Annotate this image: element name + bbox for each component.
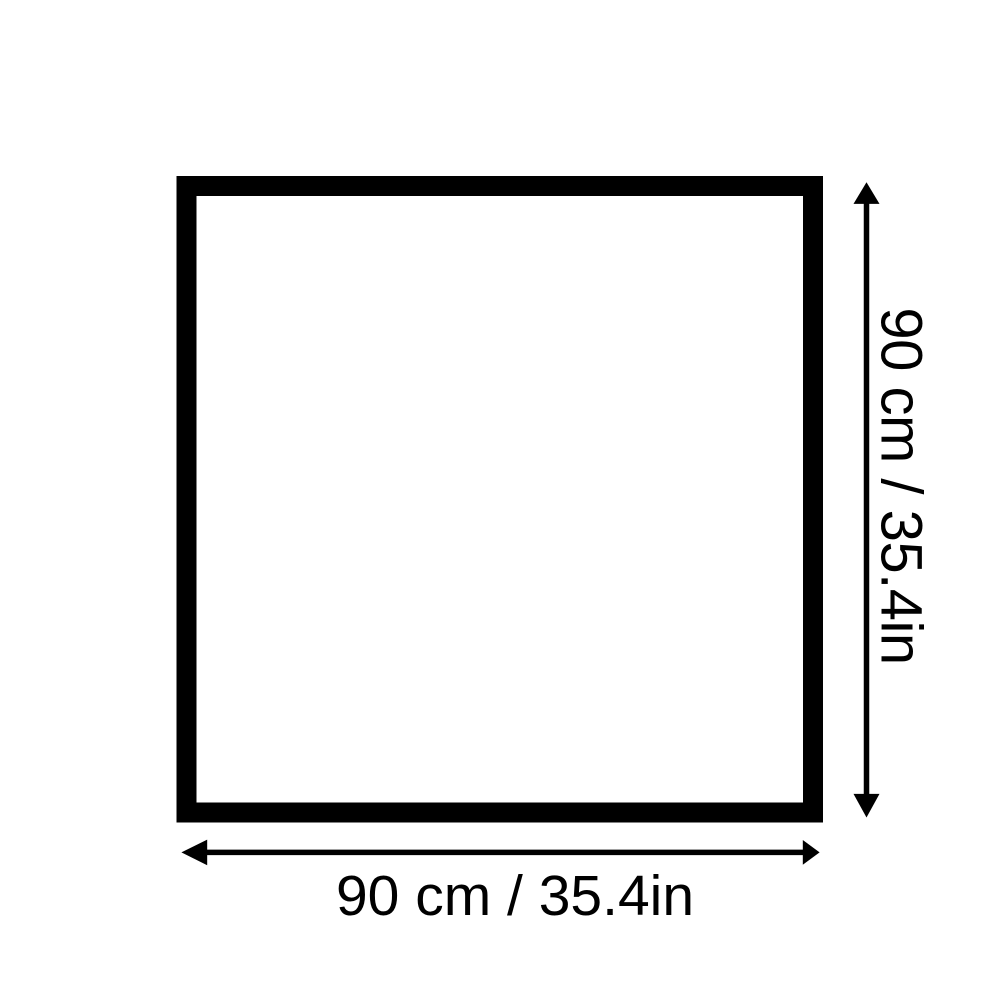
- svg-text:90 cm / 35.4in: 90 cm / 35.4in: [336, 864, 694, 928]
- svg-text:90 cm / 35.4in: 90 cm / 35.4in: [869, 307, 934, 664]
